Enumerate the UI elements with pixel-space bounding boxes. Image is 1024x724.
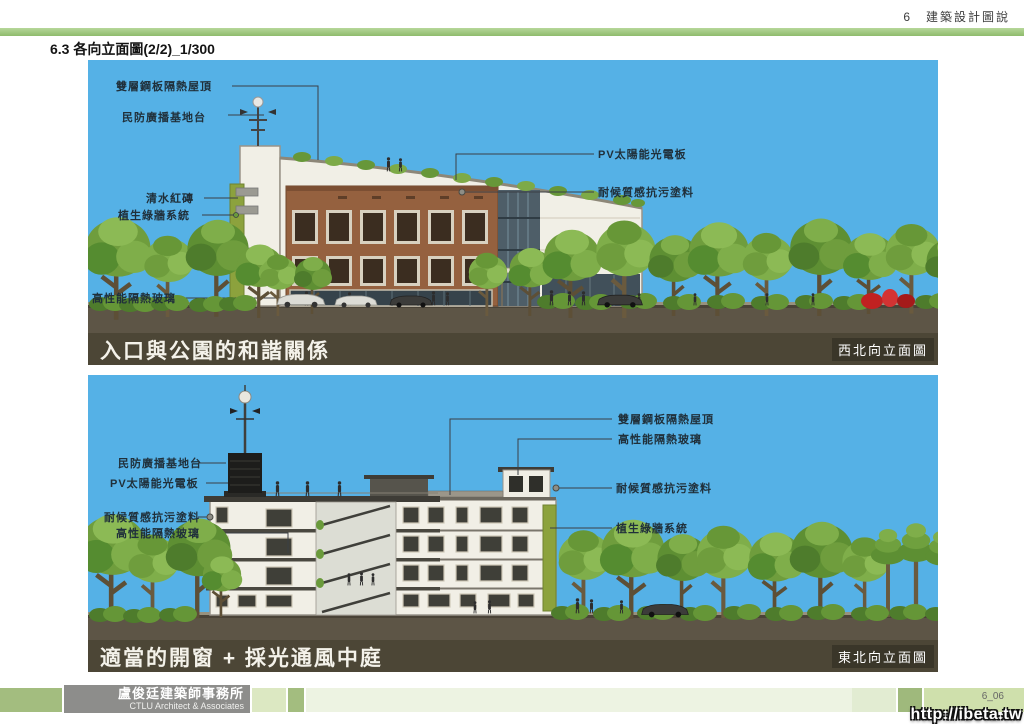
annotation-insulated-glass: 高性能隔熱玻璃 [116,525,200,541]
annotation-insulated-glass: 高性能隔熱玻璃 [92,290,176,306]
elevation-drawing-northeast [88,375,938,640]
header-accent-bar [0,28,1024,36]
annotation-fairfaced-brick: 清水紅磚 [146,190,194,206]
annotation-weatherproof-paint: 耐候質感抗污塗料 [104,509,200,525]
annotation-double-steel-roof: 雙層鋼板隔熱屋頂 [618,411,714,427]
watermark-url: http://ibeta.tw [911,706,1022,724]
elevation-direction-label: 西北向立面圖 [832,338,934,361]
caption-text: 入口與公園的和諧關係 [100,335,330,365]
caption-bar-northeast: 適當的開窗 + 採光通風中庭 東北向立面圖 [88,640,938,672]
firm-name-zh: 盧俊廷建築師事務所 [64,686,244,701]
footer-strip [306,688,852,712]
elevation-panel-northwest: 雙層鋼板隔熱屋頂 民防廣播基地台 清水紅磚 植生綠牆系統 高性能隔熱玻璃 PV太… [88,60,938,365]
elevation-direction-label: 東北向立面圖 [832,645,934,668]
caption-text: 適當的開窗 + 採光通風中庭 [100,642,383,672]
annotation-weatherproof-paint: 耐候質感抗污塗料 [616,480,712,496]
firm-name-en: CTLU Architect & Associates [64,701,244,711]
annotation-double-steel-roof: 雙層鋼板隔熱屋頂 [116,78,212,94]
footer-strip [852,688,896,712]
antenna-mast [249,106,267,146]
annotation-civil-broadcast: 民防廣播基地台 [122,109,206,125]
annotation-pv-panel: PV太陽能光電板 [598,146,687,162]
annotation-civil-broadcast: 民防廣播基地台 [118,455,202,471]
section-title: 6.3 各向立面圖(2/2)_1/300 [50,39,215,59]
slide-page: 6 建築設計圖說 6.3 各向立面圖(2/2)_1/300 [0,0,1024,724]
annotation-insulated-glass: 高性能隔熱玻璃 [618,431,702,447]
firm-name-box: 盧俊廷建築師事務所 CTLU Architect & Associates [64,685,250,713]
annotation-pv-panel: PV太陽能光電板 [110,475,199,491]
footer-accent-block [288,688,304,712]
annotation-green-wall: 植生綠牆系統 [616,520,688,536]
annotation-weatherproof-paint: 耐候質感抗污塗料 [598,184,694,200]
elevation-panel-northeast: 民防廣播基地台 PV太陽能光電板 耐候質感抗污塗料 高性能隔熱玻璃 雙層鋼板隔熱… [88,375,938,672]
elevation-drawing-northwest [88,60,938,333]
caption-bar-northwest: 入口與公園的和諧關係 西北向立面圖 [88,333,938,365]
annotation-green-wall: 植生綠牆系統 [118,207,190,223]
footer-strip [252,688,286,712]
footer-accent-block [0,688,62,712]
header-page-label: 6 建築設計圖說 [903,8,1010,25]
page-number: 6_06 [982,691,1004,702]
